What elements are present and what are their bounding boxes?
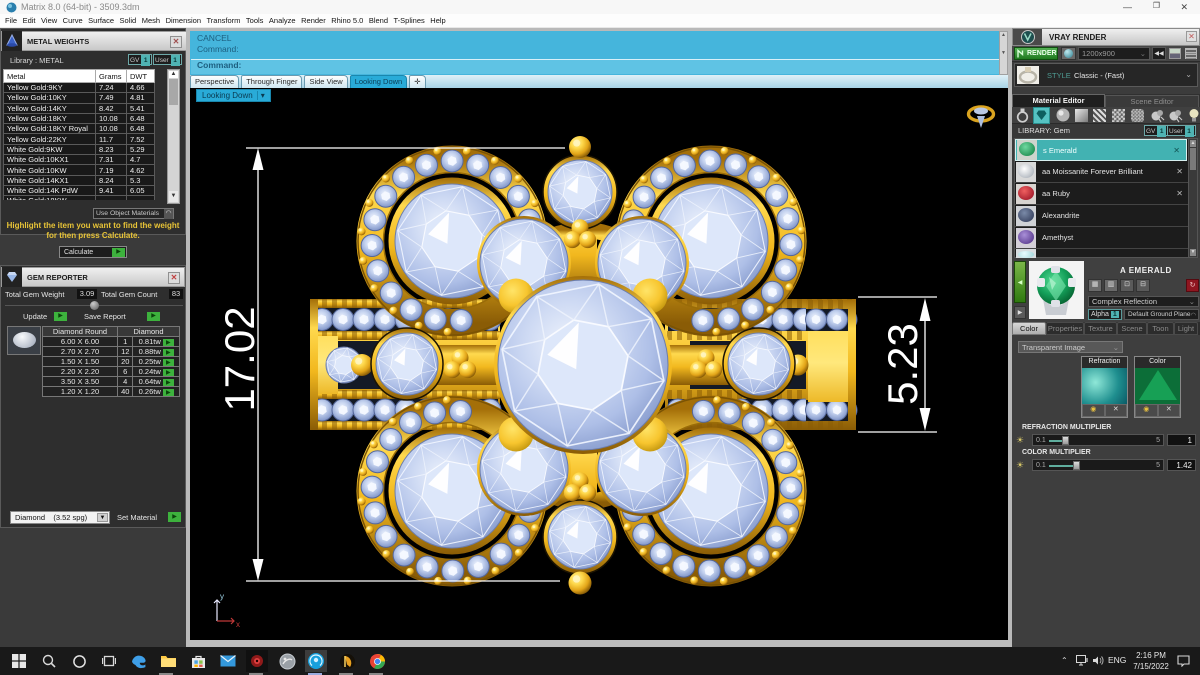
svg-text:y: y	[220, 592, 224, 601]
svg-text:5.23: 5.23	[879, 323, 926, 405]
svg-text:17.02: 17.02	[216, 306, 263, 411]
svg-text:x: x	[236, 620, 240, 629]
